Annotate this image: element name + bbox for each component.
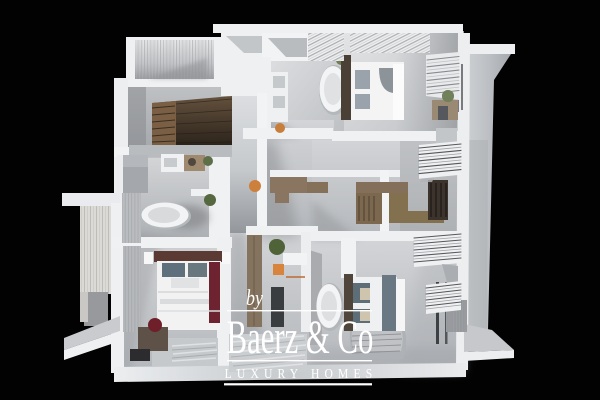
svg-text:by: by — [246, 286, 263, 310]
svg-text:Baerz & Co: Baerz & Co — [227, 310, 374, 364]
svg-text:LUXURY HOMES: LUXURY HOMES — [225, 366, 378, 381]
